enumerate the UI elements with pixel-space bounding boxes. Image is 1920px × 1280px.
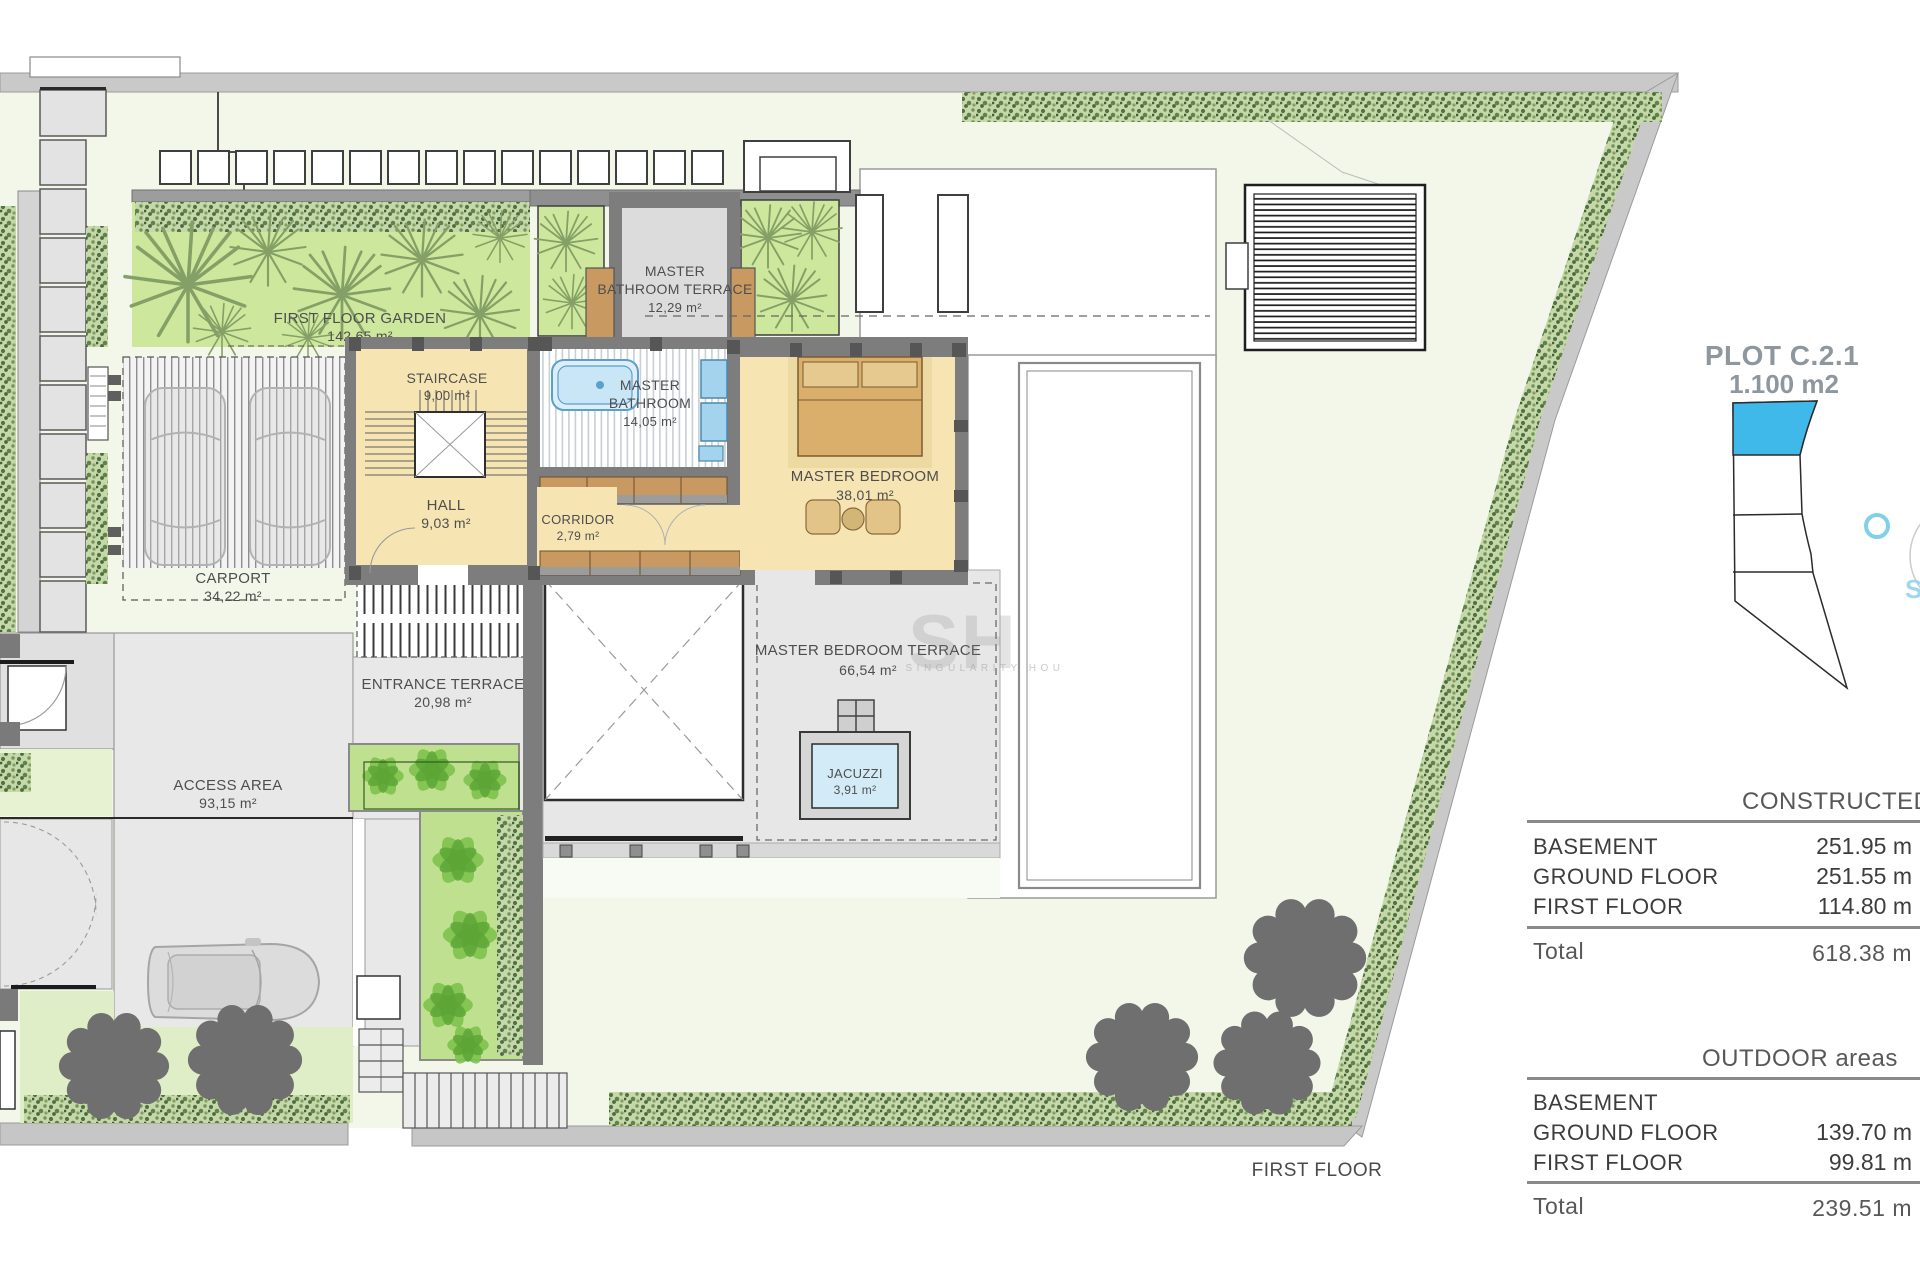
svg-text:93,15 m²: 93,15 m² bbox=[199, 795, 257, 811]
svg-text:114.80 m: 114.80 m bbox=[1818, 893, 1912, 919]
svg-text:SINGULARITY HOU: SINGULARITY HOU bbox=[906, 663, 1065, 674]
svg-text:ENTRANCE TERRACE: ENTRANCE TERRACE bbox=[362, 676, 525, 693]
svg-text:FIRST FLOOR GARDEN: FIRST FLOOR GARDEN bbox=[274, 310, 447, 327]
svg-text:MASTER BEDROOM: MASTER BEDROOM bbox=[791, 468, 939, 485]
svg-text:GROUND FLOOR: GROUND FLOOR bbox=[1533, 864, 1719, 889]
svg-text:BATHROOM TERRACE: BATHROOM TERRACE bbox=[597, 281, 752, 297]
svg-text:3,91 m²: 3,91 m² bbox=[834, 783, 877, 797]
svg-text:HALL: HALL bbox=[427, 497, 466, 514]
svg-text:S: S bbox=[1905, 574, 1920, 604]
svg-text:66,54 m²: 66,54 m² bbox=[839, 662, 897, 678]
svg-text:CORRIDOR: CORRIDOR bbox=[541, 512, 614, 527]
svg-text:12,29 m²: 12,29 m² bbox=[648, 300, 702, 315]
svg-text:JACUZZI: JACUZZI bbox=[827, 766, 883, 781]
svg-text:STAIRCASE: STAIRCASE bbox=[406, 370, 487, 386]
svg-text:2,79 m²: 2,79 m² bbox=[557, 529, 600, 543]
svg-text:BASEMENT: BASEMENT bbox=[1533, 834, 1658, 859]
svg-text:139.70 m: 139.70 m bbox=[1816, 1119, 1912, 1145]
svg-text:BATHROOM: BATHROOM bbox=[609, 395, 691, 411]
svg-text:251.95 m: 251.95 m bbox=[1816, 833, 1912, 859]
svg-text:MASTER: MASTER bbox=[645, 263, 705, 279]
svg-text:618.38 m: 618.38 m bbox=[1812, 940, 1912, 966]
svg-text:34,22 m²: 34,22 m² bbox=[204, 588, 262, 604]
svg-text:CONSTRUCTED areas: CONSTRUCTED areas bbox=[1742, 788, 1920, 815]
svg-text:OUTDOOR areas: OUTDOOR areas bbox=[1702, 1045, 1898, 1072]
svg-text:99.81 m: 99.81 m bbox=[1829, 1149, 1912, 1175]
svg-text:239.51 m: 239.51 m bbox=[1812, 1195, 1912, 1221]
svg-text:Total: Total bbox=[1533, 938, 1584, 964]
svg-text:PLOT C.2.1: PLOT C.2.1 bbox=[1705, 340, 1859, 371]
svg-text:ACCESS AREA: ACCESS AREA bbox=[173, 777, 282, 794]
svg-text:MASTER: MASTER bbox=[620, 377, 680, 393]
svg-text:20,98 m²: 20,98 m² bbox=[414, 694, 472, 710]
svg-text:38,01 m²: 38,01 m² bbox=[836, 487, 894, 503]
svg-text:9,00 m²: 9,00 m² bbox=[424, 388, 471, 403]
svg-text:14,05 m²: 14,05 m² bbox=[623, 414, 677, 429]
svg-text:FIRST FLOOR: FIRST FLOOR bbox=[1252, 1160, 1383, 1181]
svg-text:BASEMENT: BASEMENT bbox=[1533, 1090, 1658, 1115]
svg-text:FIRST FLOOR: FIRST FLOOR bbox=[1533, 1150, 1684, 1175]
svg-text:251.55 m: 251.55 m bbox=[1816, 863, 1912, 889]
svg-text:GROUND FLOOR: GROUND FLOOR bbox=[1533, 1120, 1719, 1145]
svg-text:CARPORT: CARPORT bbox=[195, 570, 270, 587]
svg-text:Total: Total bbox=[1533, 1193, 1584, 1219]
svg-text:1.100 m2: 1.100 m2 bbox=[1729, 369, 1839, 399]
svg-text:9,03 m²: 9,03 m² bbox=[421, 515, 471, 531]
svg-text:FIRST FLOOR: FIRST FLOOR bbox=[1533, 894, 1684, 919]
